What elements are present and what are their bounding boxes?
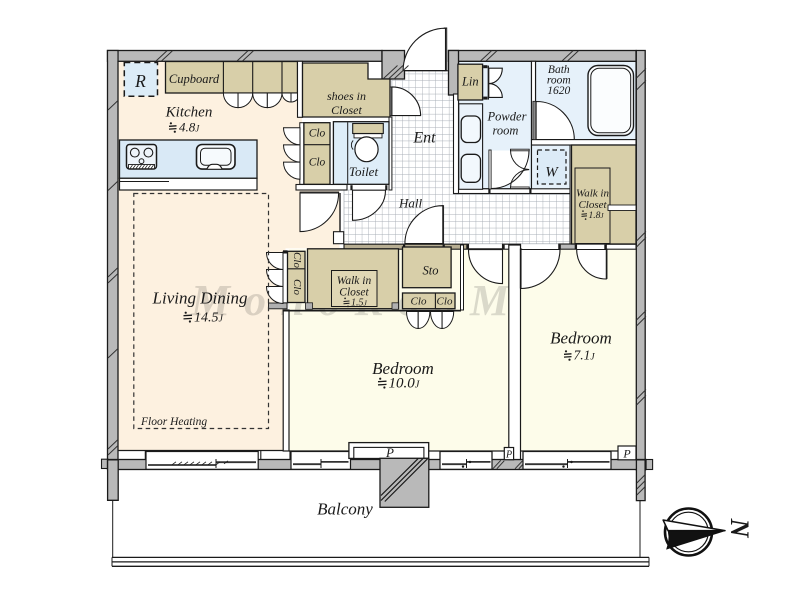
svg-text:R: R — [134, 71, 146, 91]
svg-text:shoes in: shoes in — [327, 89, 366, 103]
svg-text:Cupboard: Cupboard — [169, 72, 220, 86]
svg-text:room: room — [493, 124, 519, 138]
svg-text:W: W — [545, 165, 559, 181]
svg-text:Closet: Closet — [578, 199, 607, 211]
svg-text:Clo: Clo — [437, 296, 453, 308]
svg-text:P: P — [622, 447, 631, 461]
svg-text:Toilet: Toilet — [349, 164, 379, 179]
svg-text:Walk in: Walk in — [337, 275, 372, 287]
svg-text:Clo: Clo — [309, 128, 326, 140]
svg-text:Clo: Clo — [291, 252, 303, 268]
svg-text:Sto: Sto — [423, 264, 439, 278]
svg-text:1.5J: 1.5J — [351, 298, 368, 309]
svg-text:Floor Heating: Floor Heating — [140, 416, 207, 428]
svg-text:Ent: Ent — [412, 130, 436, 147]
svg-text:1620: 1620 — [547, 85, 570, 97]
svg-text:Hall: Hall — [398, 196, 423, 211]
svg-text:1.8J: 1.8J — [589, 211, 605, 221]
svg-text:P: P — [505, 449, 512, 460]
svg-text:Living Dining: Living Dining — [152, 289, 248, 308]
svg-text:N: N — [725, 518, 754, 539]
svg-text:Clo: Clo — [411, 296, 427, 308]
svg-text:Bedroom: Bedroom — [550, 329, 612, 348]
svg-text:Kitchen: Kitchen — [165, 105, 213, 121]
svg-text:Lin: Lin — [461, 75, 479, 89]
svg-text:Closet: Closet — [331, 103, 362, 117]
svg-text:14.5J: 14.5J — [194, 311, 224, 326]
svg-text:Clo: Clo — [309, 157, 326, 169]
svg-text:Powder: Powder — [487, 110, 527, 124]
svg-text:Walk in: Walk in — [576, 188, 609, 200]
svg-text:Clo: Clo — [291, 279, 303, 295]
svg-text:Balcony: Balcony — [317, 500, 373, 519]
